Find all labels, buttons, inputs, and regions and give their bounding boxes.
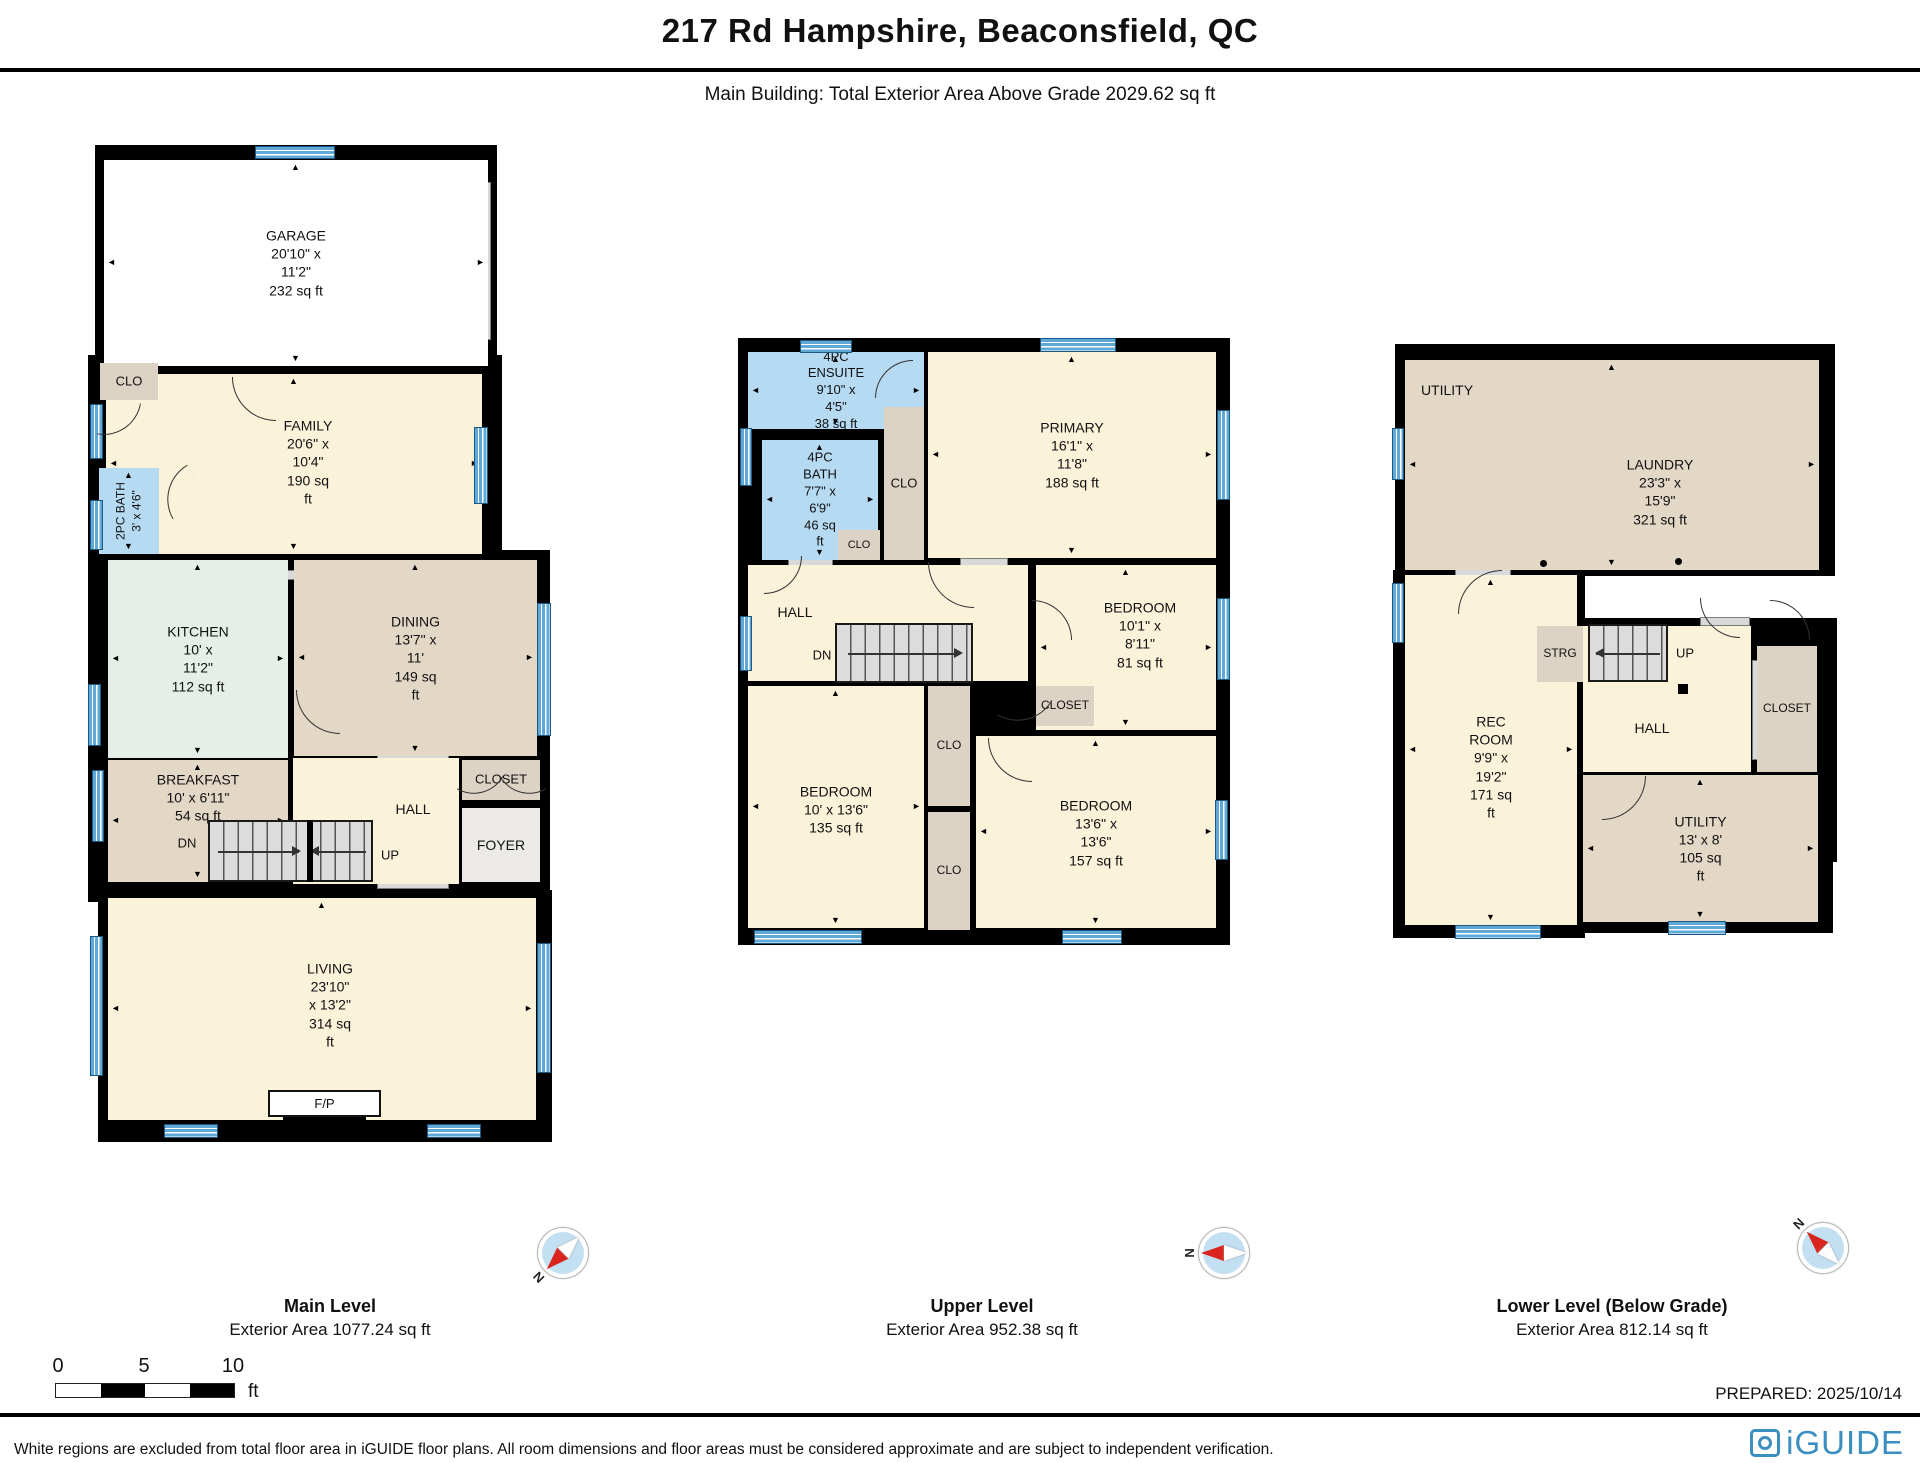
dimension-arrow-icon: ▼ [193, 746, 202, 755]
plan-text-dn: DN [813, 648, 832, 663]
plan-text-utility: UTILITY [1421, 382, 1473, 398]
dimension-arrow-icon: ▲ [291, 163, 300, 172]
window-icon [1392, 428, 1404, 480]
dimension-arrow-icon: ◄ [1408, 460, 1417, 469]
prepared-date: PREPARED: 2025/10/14 [1715, 1384, 1902, 1404]
dimension-arrow-icon: ▲ [1067, 355, 1076, 364]
stair-divider [307, 820, 313, 882]
compass-icon: N [537, 1227, 589, 1279]
plan-text-up: UP [1676, 646, 1694, 661]
dimension-arrow-icon: ◄ [107, 258, 116, 267]
window-icon [255, 146, 335, 159]
compass-needle: N [1201, 1245, 1247, 1261]
scale-tick-10: 10 [222, 1355, 244, 1378]
dimension-arrow-icon: ► [1204, 827, 1213, 836]
dimension-arrow-icon: ▲ [193, 763, 202, 772]
window-icon [1668, 921, 1726, 935]
compass-icon: N [1797, 1222, 1849, 1274]
dimension-arrow-icon: ▲ [1696, 778, 1705, 787]
footer-divider [0, 1413, 1920, 1417]
dimension-arrow-icon: ► [1204, 643, 1213, 652]
compass-north-label: N [1790, 1215, 1807, 1232]
main-level-caption: Main Level Exterior Area 1077.24 sq ft [100, 1296, 560, 1340]
room-label-strg: STRG [1543, 646, 1576, 662]
room-label-garage: GARAGE 20'10" x 11'2" 232 sq ft [266, 227, 326, 300]
floor-plan-page: 217 Rd Hampshire, Beaconsfield, QC Main … [0, 0, 1920, 1463]
iguide-logo: iGUIDE [1750, 1424, 1904, 1462]
dimension-arrow-icon: ▼ [291, 354, 300, 363]
stair-direction-arrow-icon [1595, 648, 1604, 658]
stairs [1588, 624, 1668, 682]
window-icon [92, 770, 104, 842]
stair-flight [307, 822, 371, 880]
dimension-arrow-icon: ► [1806, 844, 1815, 853]
stairs [835, 623, 973, 683]
window-icon [1455, 925, 1541, 939]
level-name: Main Level [100, 1296, 560, 1317]
lower-level-caption: Lower Level (Below Grade) Exterior Area … [1382, 1296, 1842, 1340]
stair-direction-line [312, 851, 366, 853]
room-label-clo-main: CLO [116, 373, 143, 390]
room-label-bedroom-big: BEDROOM 13'6" x 13'6" 157 sq ft [1060, 797, 1132, 870]
stair-direction-line [848, 653, 961, 655]
window-icon [740, 428, 752, 486]
dimension-arrow-icon: ▼ [124, 542, 133, 551]
dimension-arrow-icon: ◄ [111, 654, 120, 663]
dimension-arrow-icon: ► [1807, 460, 1816, 469]
room-label-hall-main: HALL [395, 800, 430, 818]
dimension-arrow-icon: ◄ [297, 653, 306, 662]
room-label-hall-lower: HALL [1634, 719, 1669, 737]
page-subtitle: Main Building: Total Exterior Area Above… [0, 84, 1920, 106]
window-icon [474, 427, 488, 504]
compass-north-label: N [1182, 1248, 1197, 1257]
dimension-arrow-icon: ▲ [193, 563, 202, 572]
window-icon [800, 340, 852, 353]
plan-text-up: UP [381, 848, 399, 863]
window-icon [90, 500, 103, 550]
page-title: 217 Rd Hampshire, Beaconsfield, QC [0, 12, 1920, 50]
dimension-arrow-icon: ▼ [1091, 916, 1100, 925]
level-area: Exterior Area 1077.24 sq ft [100, 1320, 560, 1340]
dimension-arrow-icon: ► [1204, 450, 1213, 459]
dimension-arrow-icon: ◄ [765, 495, 774, 504]
window-icon [90, 936, 103, 1076]
header-divider [0, 68, 1920, 72]
dimension-arrow-icon: ◄ [751, 386, 760, 395]
compass-icon: N [1198, 1227, 1250, 1279]
dimension-arrow-icon: ▲ [815, 443, 824, 452]
scale-segment [56, 1384, 101, 1397]
level-area: Exterior Area 952.38 sq ft [752, 1320, 1212, 1340]
dimension-arrow-icon: ▲ [831, 689, 840, 698]
dimension-arrow-icon: ◄ [109, 459, 118, 468]
dimension-arrow-icon: ◄ [931, 450, 940, 459]
level-area: Exterior Area 812.14 sq ft [1382, 1320, 1842, 1340]
window-icon [164, 1124, 218, 1138]
room-label-breakfast: BREAKFAST 10' x 6'11" 54 sq ft [157, 771, 239, 826]
stair-direction-arrow-icon [292, 846, 301, 856]
footer-disclaimer: White regions are excluded from total fl… [14, 1441, 1274, 1459]
fireplace: F/P [268, 1090, 381, 1117]
dimension-arrow-icon: ▼ [1696, 910, 1705, 919]
room-label-4pc-bath: 4PC BATH 7'7" x 6'9" 46 sq ft [803, 449, 837, 550]
dimension-arrow-icon: ▲ [831, 355, 840, 364]
compass-needle-south [1224, 1245, 1247, 1261]
scale-unit: ft [248, 1381, 259, 1403]
compass-north-label: N [530, 1269, 547, 1286]
room-label-living: LIVING 23'10" x 13'2" 314 sq ft [307, 960, 353, 1051]
compass-needle-north [1201, 1245, 1224, 1261]
room-label-hall-upper: HALL [777, 603, 812, 621]
window-icon [1392, 583, 1404, 643]
room-label-kitchen: KITCHEN 10' x 11'2" 112 sq ft [167, 623, 228, 696]
dimension-arrow-icon: ▼ [289, 542, 298, 551]
level-name: Upper Level [752, 1296, 1212, 1317]
support-column-dot [1675, 558, 1682, 565]
window-icon [1217, 410, 1230, 500]
dimension-arrow-icon: ◄ [1586, 844, 1595, 853]
dimension-arrow-icon: ► [276, 654, 285, 663]
room-label-bedroom-small: BEDROOM 10'1" x 8'11" 81 sq ft [1104, 599, 1176, 672]
dimension-arrow-icon: ◄ [1408, 745, 1417, 754]
scale-segment [190, 1384, 235, 1397]
dimension-arrow-icon: ► [912, 802, 921, 811]
dimension-arrow-icon: ▲ [317, 901, 326, 910]
dimension-arrow-icon: ▲ [124, 471, 133, 480]
room-label-dining: DINING 13'7" x 11' 149 sq ft [391, 613, 440, 704]
iguide-logo-text: iGUIDE [1786, 1424, 1904, 1462]
room-label-laundry: LAUNDRY 23'3" x 15'9" 321 sq ft [1627, 456, 1694, 529]
dimension-arrow-icon: ◄ [979, 827, 988, 836]
window-icon [537, 603, 551, 736]
room-label-clo-mid1: CLO [937, 738, 962, 754]
dimension-arrow-icon: ▼ [1067, 546, 1076, 555]
dimension-arrow-icon: ▲ [1091, 739, 1100, 748]
support-post [1678, 684, 1688, 694]
room-label-clo-small: CLO [848, 538, 871, 552]
window-icon [754, 930, 862, 944]
window-icon [1040, 338, 1116, 352]
dimension-arrow-icon: ◄ [111, 1004, 120, 1013]
scale-segment [145, 1384, 190, 1397]
dimension-arrow-icon: ▼ [831, 417, 840, 426]
fireplace-hearth [283, 1117, 366, 1131]
stair-flight [837, 625, 971, 681]
iguide-camera-icon [1750, 1429, 1780, 1457]
stair-flight [1590, 626, 1666, 680]
stair-direction-line [218, 851, 299, 853]
dimension-arrow-icon: ► [525, 653, 534, 662]
room-label-primary: PRIMARY 16'1" x 11'8" 188 sq ft [1040, 419, 1104, 492]
dimension-arrow-icon: ▲ [289, 377, 298, 386]
dimension-arrow-icon: ▼ [1486, 913, 1495, 922]
window-icon [1215, 800, 1228, 860]
room-label-foyer: FOYER [477, 836, 525, 854]
scale-tick-5: 5 [138, 1355, 149, 1378]
dimension-arrow-icon: ► [912, 386, 921, 395]
room-label-clo-vert: CLO [891, 475, 918, 492]
room-label-2pc-bath: 2PC BATH 3' x 4'6" [113, 482, 144, 540]
support-column-dot [1540, 560, 1547, 567]
dimension-arrow-icon: ▲ [1121, 568, 1130, 577]
dimension-arrow-icon: ◄ [111, 816, 120, 825]
room-label-clo-mid2: CLO [937, 863, 962, 879]
stair-flight [210, 822, 307, 880]
window-icon [1062, 930, 1122, 944]
window-icon [88, 684, 101, 746]
dimension-arrow-icon: ▼ [1607, 558, 1616, 567]
level-name: Lower Level (Below Grade) [1382, 1296, 1842, 1317]
dimension-arrow-icon: ◄ [1039, 643, 1048, 652]
dimension-arrow-icon: ▼ [193, 870, 202, 879]
window-icon [537, 943, 551, 1073]
scale-tick-0: 0 [52, 1355, 63, 1378]
room-label-family: FAMILY 20'6" x 10'4" 190 sq ft [284, 417, 333, 508]
dimension-arrow-icon: ▼ [411, 744, 420, 753]
dimension-arrow-icon: ▼ [1121, 718, 1130, 727]
window-icon [1217, 598, 1230, 680]
dimension-arrow-icon: ► [866, 495, 875, 504]
upper-level-caption: Upper Level Exterior Area 952.38 sq ft [752, 1296, 1212, 1340]
scale-bar-segments [55, 1383, 235, 1398]
dimension-arrow-icon: ► [1565, 745, 1574, 754]
window-icon [427, 1124, 481, 1138]
dimension-arrow-icon: ► [476, 258, 485, 267]
stairs [208, 820, 373, 882]
dimension-arrow-icon: ▲ [411, 563, 420, 572]
dimension-arrow-icon: ▼ [831, 916, 840, 925]
dimension-arrow-icon: ▲ [1607, 363, 1616, 372]
stair-direction-line [1596, 653, 1660, 655]
dimension-arrow-icon: ▼ [815, 548, 824, 557]
room-label-rec-room: REC ROOM 9'9" x 19'2" 171 sq ft [1469, 712, 1513, 821]
room-label-utility-lower: UTILITY 13' x 8' 105 sq ft [1674, 812, 1726, 885]
plan-text-dn: DN [178, 836, 197, 851]
window-icon [740, 616, 752, 671]
dimension-arrow-icon: ◄ [751, 802, 760, 811]
dimension-arrow-icon: ► [524, 1004, 533, 1013]
room-label-bedroom-left: BEDROOM 10' x 13'6" 135 sq ft [800, 783, 872, 838]
scale-segment [101, 1384, 146, 1397]
stair-direction-arrow-icon [954, 648, 963, 658]
door-swing-icon [1770, 600, 1810, 640]
room-label-closet-lower: CLOSET [1763, 701, 1811, 717]
